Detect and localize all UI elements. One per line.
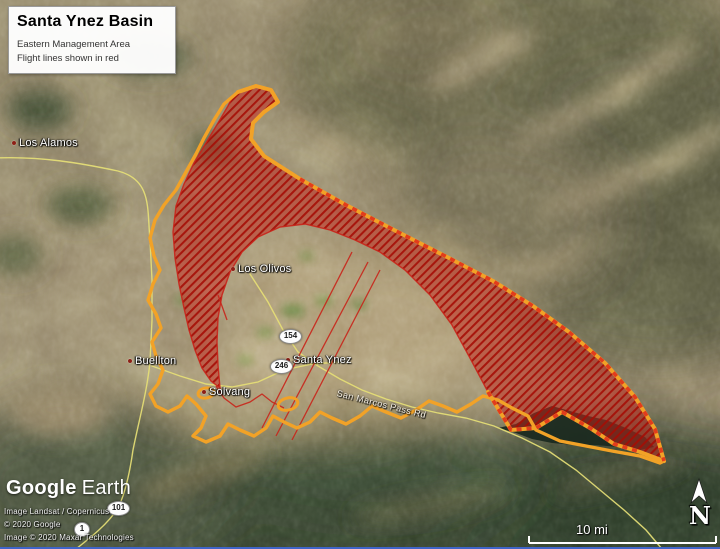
map-overlays: [0, 0, 720, 549]
city-marker-dot: [12, 141, 16, 145]
north-arrow-label: N: [686, 501, 714, 530]
map-label-los-olivos: Los Olivos: [231, 263, 291, 275]
map-title: Santa Ynez Basin: [17, 14, 167, 31]
credit-line: Image © 2020 Maxar Technologies: [4, 531, 134, 544]
city-marker-dot: [128, 359, 132, 363]
credit-line: © 2020 Google: [4, 518, 134, 531]
google-earth-logo: GoogleEarth: [6, 477, 131, 500]
map-viewport[interactable]: Santa Ynez Basin Eastern Management Area…: [0, 0, 720, 549]
north-arrow-icon: [691, 479, 707, 503]
map-label-santa-ynez: Santa Ynez: [286, 354, 352, 366]
scale-bar-label: 10 mi: [576, 522, 608, 537]
highway-shield-154: 154: [279, 329, 302, 344]
map-subtitle-2: Flight lines shown in red: [17, 52, 167, 66]
map-label-solvang: Solvang: [202, 386, 250, 398]
map-title-box: Santa Ynez Basin Eastern Management Area…: [8, 6, 176, 74]
scale-bar: [529, 536, 716, 543]
city-marker-dot: [231, 267, 235, 271]
city-marker-dot: [202, 390, 206, 394]
highway-shield-246: 246: [270, 359, 293, 374]
credit-line: Image Landsat / Copernicus: [4, 505, 134, 518]
imagery-credits: Image Landsat / Copernicus © 2020 Google…: [4, 505, 134, 544]
map-label-los-alamos: Los Alamos: [12, 137, 78, 149]
map-subtitle-1: Eastern Management Area: [17, 38, 167, 52]
map-label-buellton: Buellton: [128, 355, 176, 367]
